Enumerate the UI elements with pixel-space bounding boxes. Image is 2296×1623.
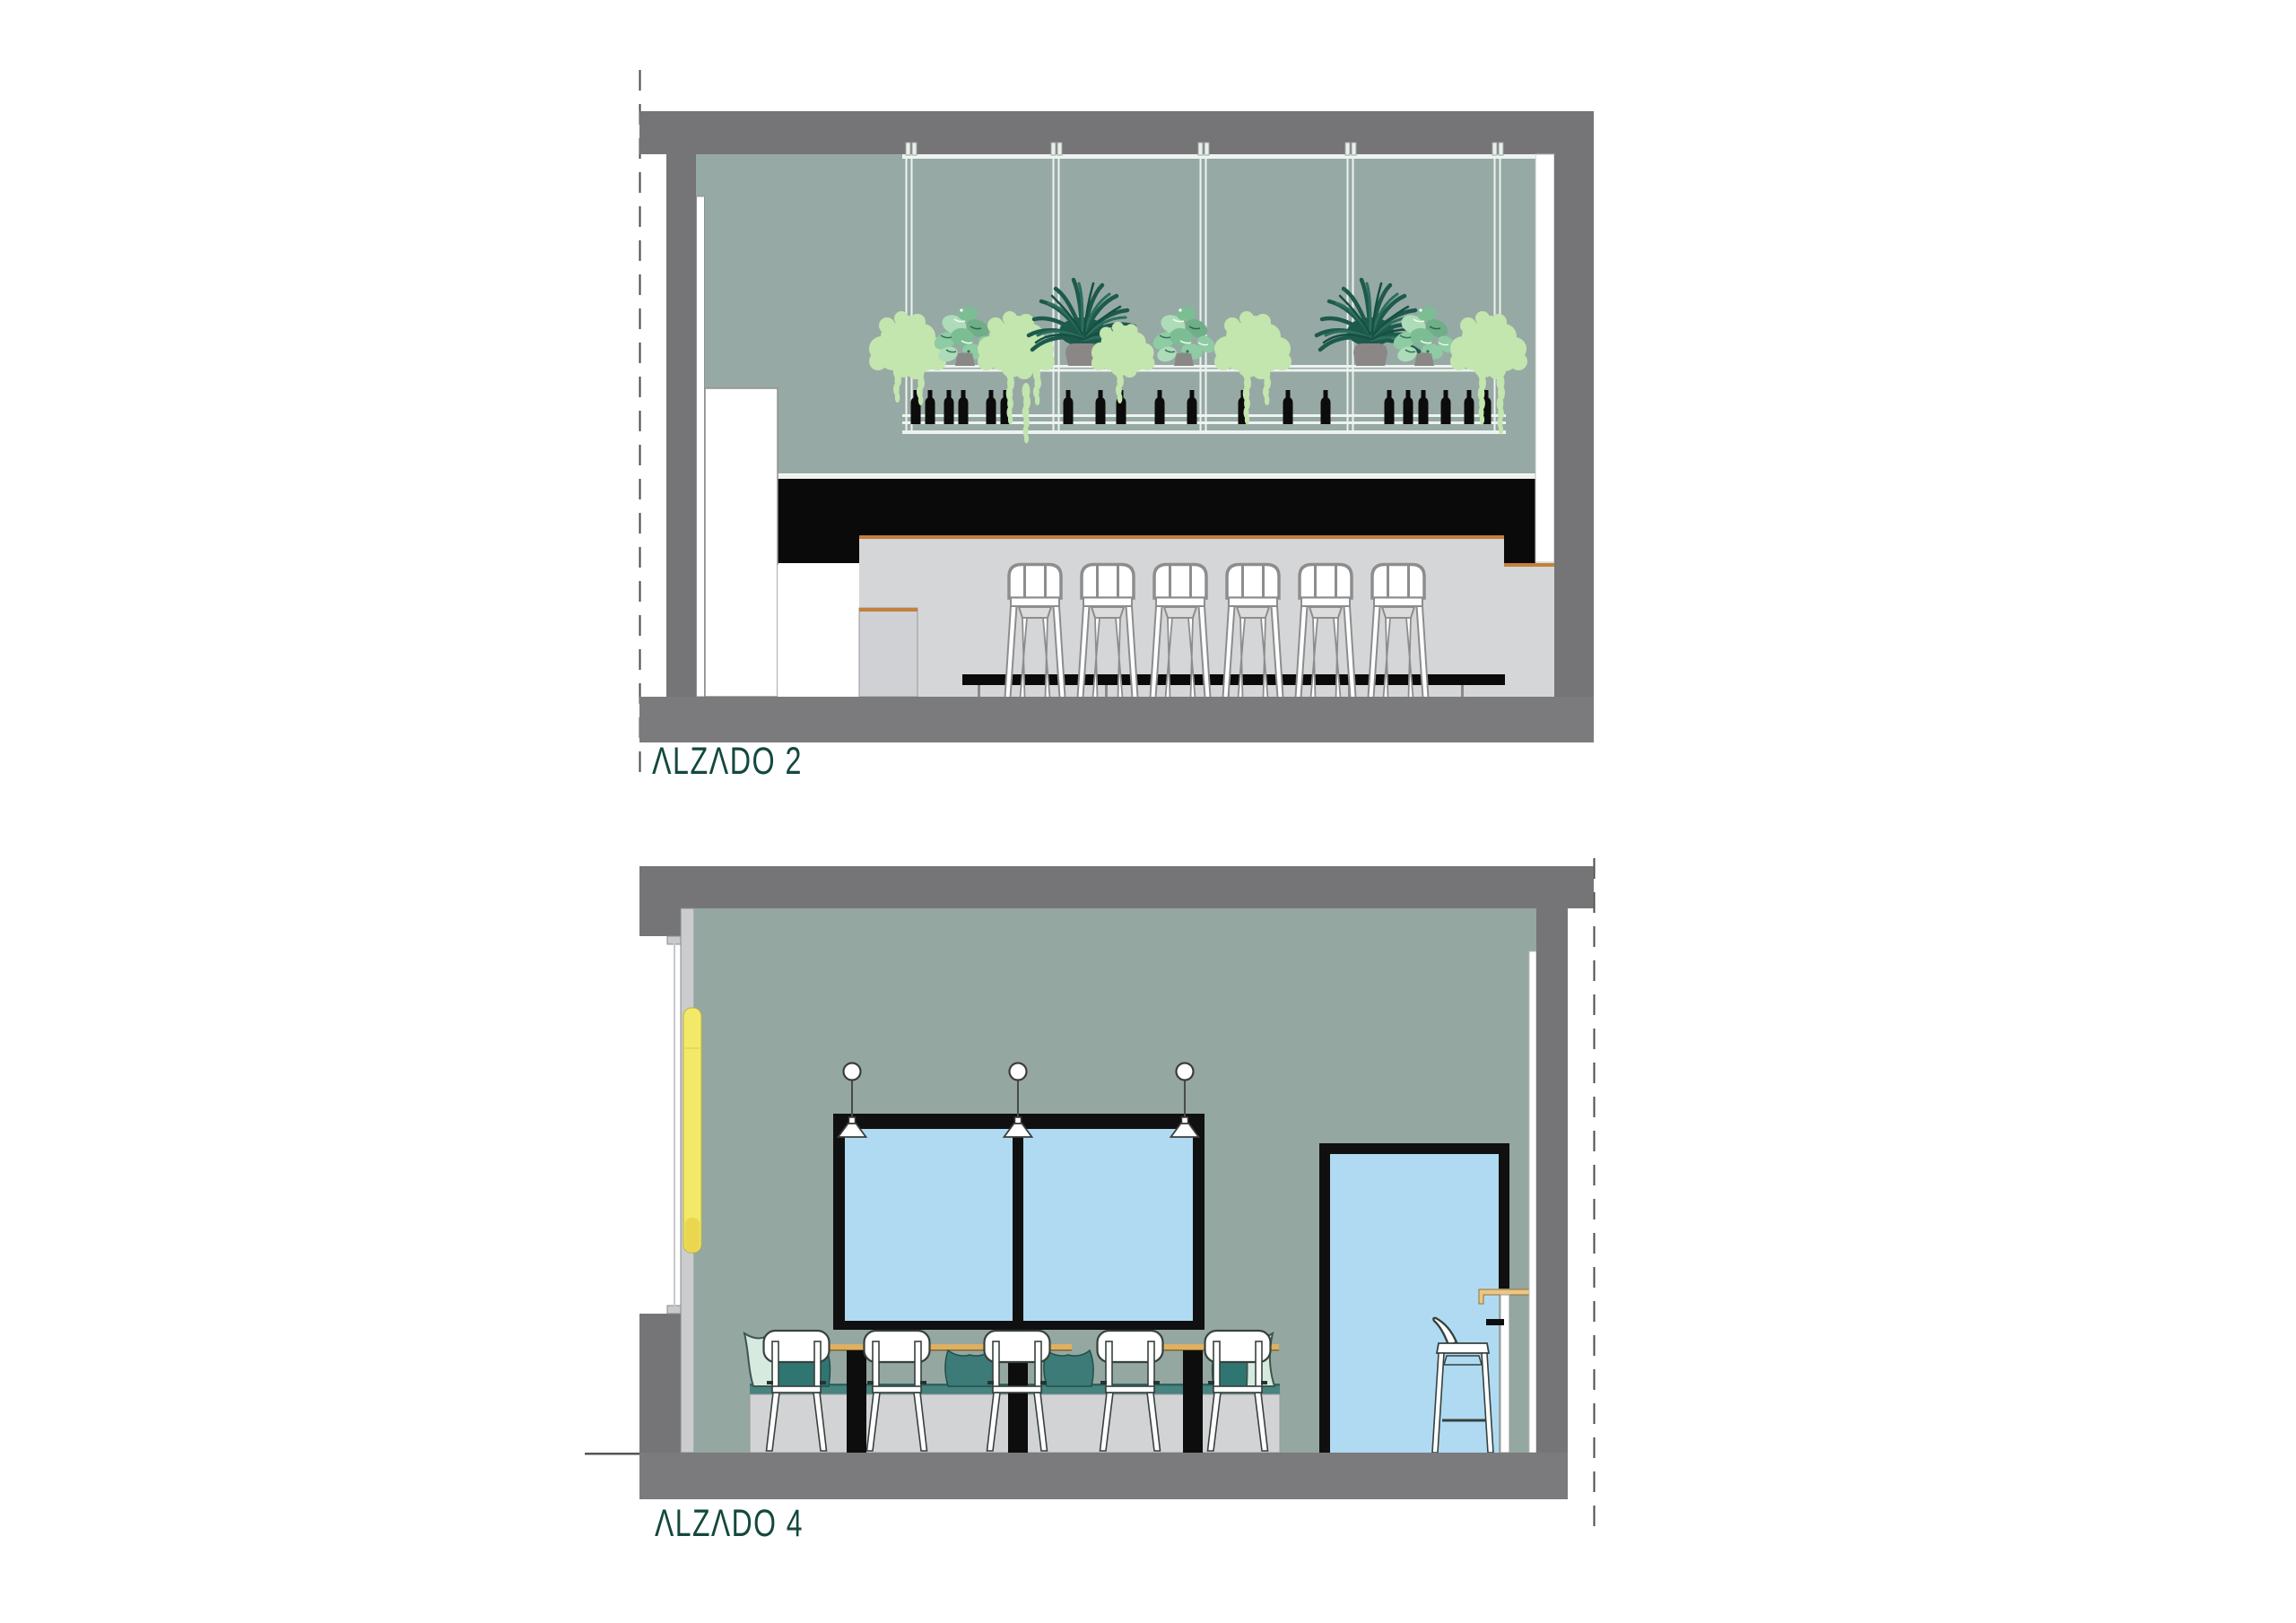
svg-text:ΛLZΛDO 4: ΛLZΛDO 4 [655, 1502, 804, 1545]
svg-text:ΛLZΛDO 2: ΛLZΛDO 2 [652, 740, 803, 783]
